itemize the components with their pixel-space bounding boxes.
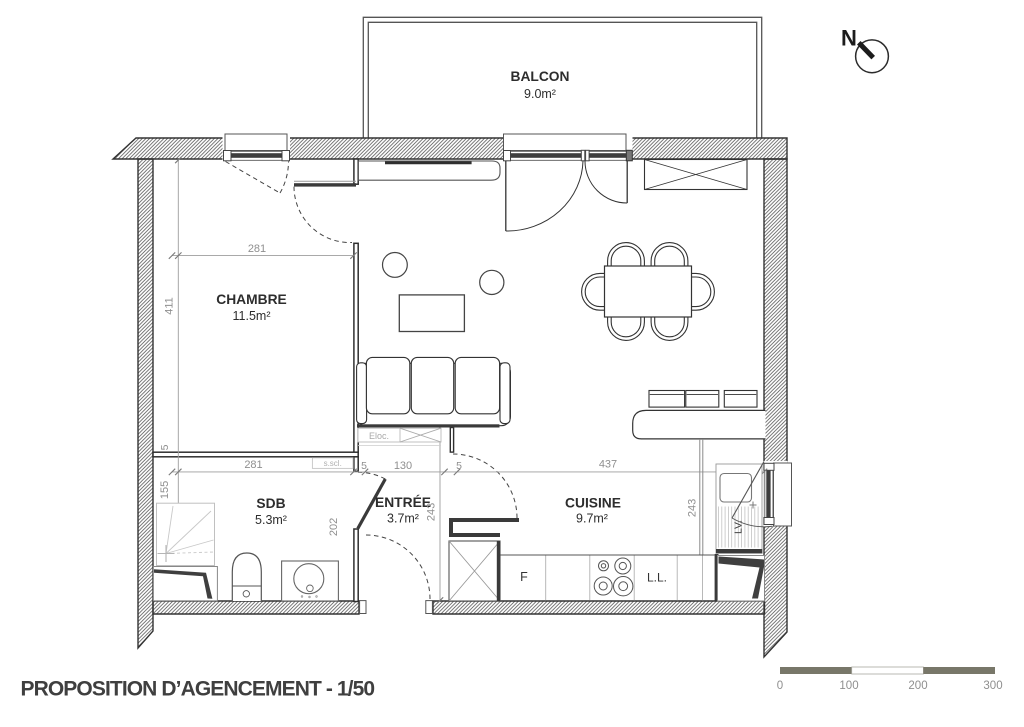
svg-text:L.L.: L.L.: [647, 571, 667, 585]
svg-text:5: 5: [361, 460, 367, 472]
svg-text:Eloc.: Eloc.: [369, 431, 389, 441]
svg-text:411: 411: [164, 297, 176, 315]
svg-text:F: F: [520, 570, 528, 584]
svg-text:200: 200: [908, 680, 927, 692]
svg-text:SDB: SDB: [256, 496, 285, 511]
svg-text:11.5m²: 11.5m²: [233, 309, 271, 323]
svg-text:ENTRÉE: ENTRÉE: [375, 494, 431, 510]
svg-text:CHAMBRE: CHAMBRE: [216, 292, 287, 307]
svg-text:243: 243: [426, 503, 438, 521]
svg-text:N: N: [841, 26, 857, 51]
svg-text:202: 202: [328, 518, 340, 536]
svg-text:BALCON: BALCON: [510, 69, 569, 84]
svg-text:300: 300: [983, 680, 1002, 692]
svg-text:LV.: LV.: [733, 520, 745, 534]
svg-text:CUISINE: CUISINE: [565, 496, 621, 511]
svg-text:155: 155: [159, 481, 171, 499]
svg-text:281: 281: [248, 243, 266, 255]
svg-text:100: 100: [839, 680, 858, 692]
svg-text:5.3m²: 5.3m²: [255, 513, 287, 527]
svg-text:9.7m²: 9.7m²: [576, 512, 608, 526]
svg-text:9.0m²: 9.0m²: [524, 87, 556, 101]
svg-text:437: 437: [599, 459, 617, 471]
svg-text:281: 281: [244, 459, 262, 471]
svg-text:243: 243: [687, 499, 699, 517]
svg-text:3.7m²: 3.7m²: [387, 512, 419, 526]
svg-text:s.scl.: s.scl.: [324, 459, 342, 468]
svg-text:PROPOSITION D’AGENCEMENT - 1/5: PROPOSITION D’AGENCEMENT - 1/50: [21, 678, 375, 701]
svg-text:0: 0: [777, 680, 783, 692]
svg-text:5: 5: [456, 460, 462, 472]
svg-text:130: 130: [394, 460, 412, 472]
svg-text:5: 5: [159, 444, 171, 450]
